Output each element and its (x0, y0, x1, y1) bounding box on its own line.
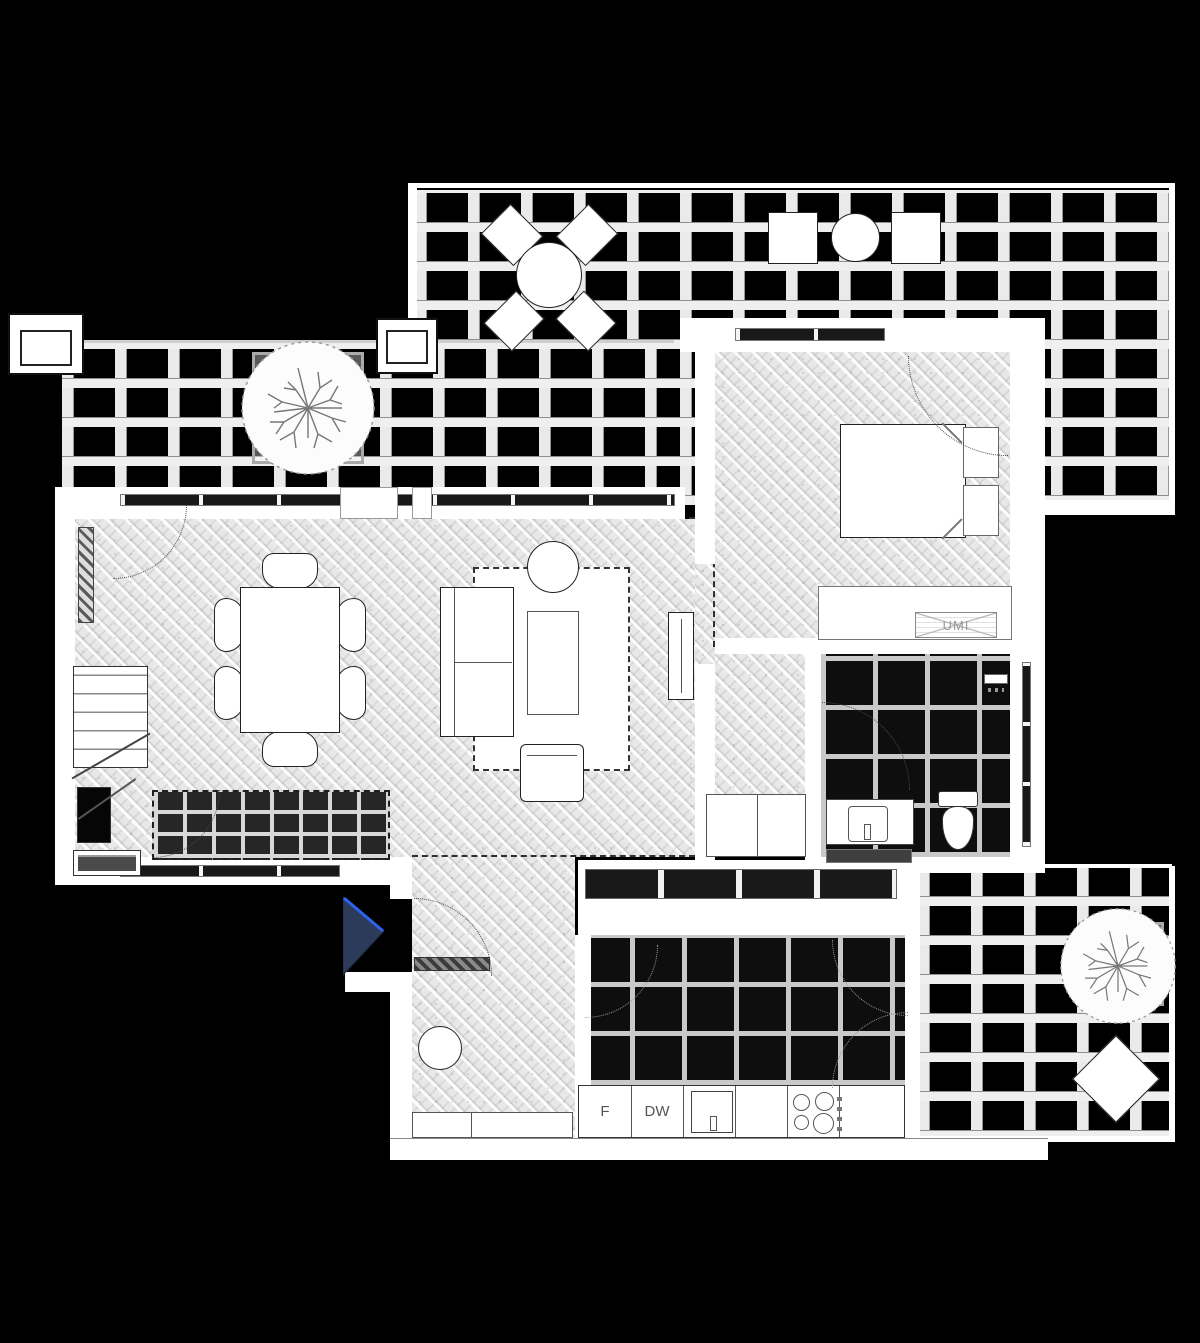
staircase-treads (73, 666, 148, 768)
bed-mattress (840, 424, 966, 538)
wall-hall-left-upper (390, 885, 412, 899)
cooktop-icon (789, 1088, 841, 1137)
corridor-cabinet (706, 794, 806, 857)
burner (793, 1094, 810, 1111)
wall-living-right-upper (695, 352, 715, 564)
counter-divider (787, 1086, 788, 1137)
burner (813, 1113, 834, 1134)
burner (815, 1092, 834, 1111)
window-living-bottom (120, 865, 340, 877)
wall-bedroom-bath-divider (715, 638, 1010, 654)
sink-handle (710, 1116, 717, 1131)
dining-chair (262, 553, 318, 589)
hallway-floor (412, 857, 575, 1138)
toilet-icon (938, 791, 978, 807)
washer-box: UMI (915, 612, 997, 638)
tree-icon (233, 333, 383, 483)
dishwasher-label: DW (631, 1086, 683, 1137)
wall-post (412, 487, 432, 519)
wall-bottom-band (390, 1138, 1048, 1160)
armchair (520, 744, 584, 802)
cabinet-divider (757, 795, 758, 856)
wall-post (340, 487, 398, 519)
kitchen-counter: F DW (578, 1085, 905, 1138)
tv-screen-line (681, 619, 682, 693)
hall-bench (412, 1112, 573, 1138)
dining-table (240, 587, 340, 733)
canvas: { "plan": { "labels": { "washer_unit": "… (0, 0, 1200, 1343)
shower-dots (988, 688, 1004, 692)
window-bathroom-right (1022, 662, 1031, 847)
counter-divider (735, 1086, 736, 1137)
terrace-side-table (831, 213, 880, 262)
cooktop-knobs (837, 1093, 842, 1131)
counter-divider (683, 1086, 684, 1137)
bench-divider (471, 1113, 472, 1137)
terrace-lounge-chair (891, 212, 941, 264)
wardrobe-row (585, 869, 897, 899)
terrace-round-table (516, 242, 582, 308)
dining-chair (336, 666, 366, 720)
planter-box-left-inner (20, 330, 72, 366)
bath-mat (826, 849, 912, 863)
planter-box-mid-inner (386, 330, 428, 364)
shower-icon (984, 674, 1008, 684)
dining-chair (336, 598, 366, 652)
window-bedroom-top (735, 328, 885, 341)
bed-pillow (963, 485, 999, 536)
entrance-arrow-icon (343, 895, 387, 977)
armchair-seat-line (527, 755, 577, 756)
kitchen-sink-icon (691, 1091, 733, 1133)
wall-left (55, 487, 75, 885)
radiator (78, 527, 94, 623)
floor-edge-dashed (412, 855, 695, 857)
deck-boundary-top (408, 183, 1174, 188)
stair-base-box-fill (78, 855, 136, 871)
stair-base-box (73, 850, 141, 876)
washer-label: UMI (916, 613, 996, 637)
coffee-table (527, 611, 579, 715)
faucet-icon (864, 824, 871, 840)
sofa (440, 587, 514, 737)
dining-chair (262, 731, 318, 767)
hall-stool (418, 1026, 462, 1070)
burner (794, 1115, 809, 1130)
tree-icon (1053, 901, 1183, 1031)
sofa-cushion-line (454, 662, 512, 663)
deck-bottom-edge-band (1045, 500, 1175, 515)
wall-hall-left-lower (390, 972, 412, 1142)
fridge-label: F (579, 1086, 631, 1137)
deck-boundary-right (1169, 183, 1175, 507)
wall-bathroom-left (805, 654, 821, 860)
floor-plan: UMI F DW (0, 0, 1200, 1343)
tv-board (668, 612, 694, 700)
corridor-door-gap-floor (695, 564, 715, 664)
pouf (527, 541, 579, 593)
terrace-lounge-chair (768, 212, 818, 264)
